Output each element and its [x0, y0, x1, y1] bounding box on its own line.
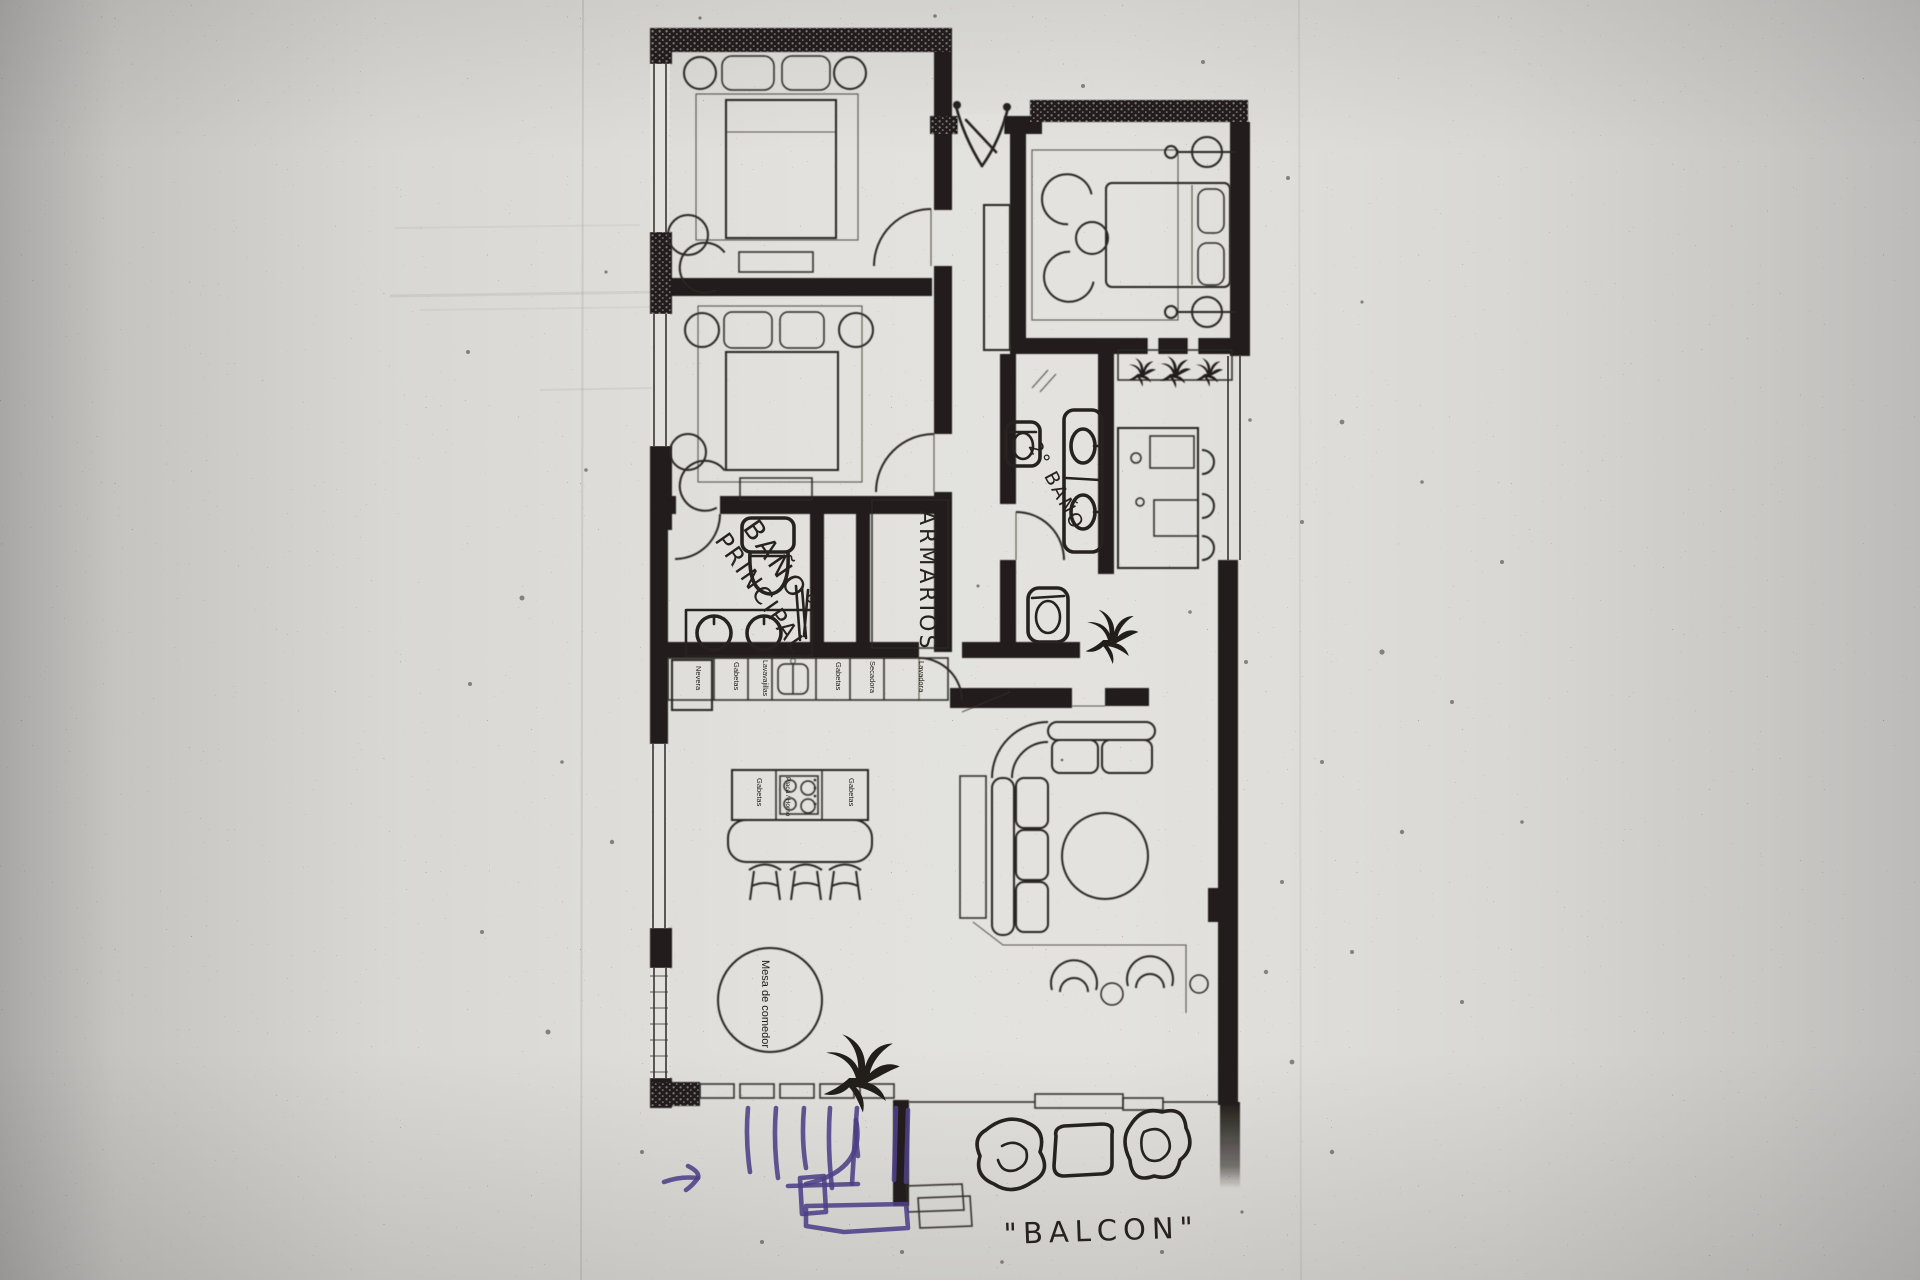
scan-artifacts [0, 0, 1920, 1280]
scanned-floor-plan-photo: BAÑO° PRINCIPAL ARMARIOS 2° BAÑO "BALCON… [0, 0, 1920, 1280]
floor-plan-drawing: BAÑO° PRINCIPAL ARMARIOS 2° BAÑO "BALCON… [0, 0, 1920, 1280]
